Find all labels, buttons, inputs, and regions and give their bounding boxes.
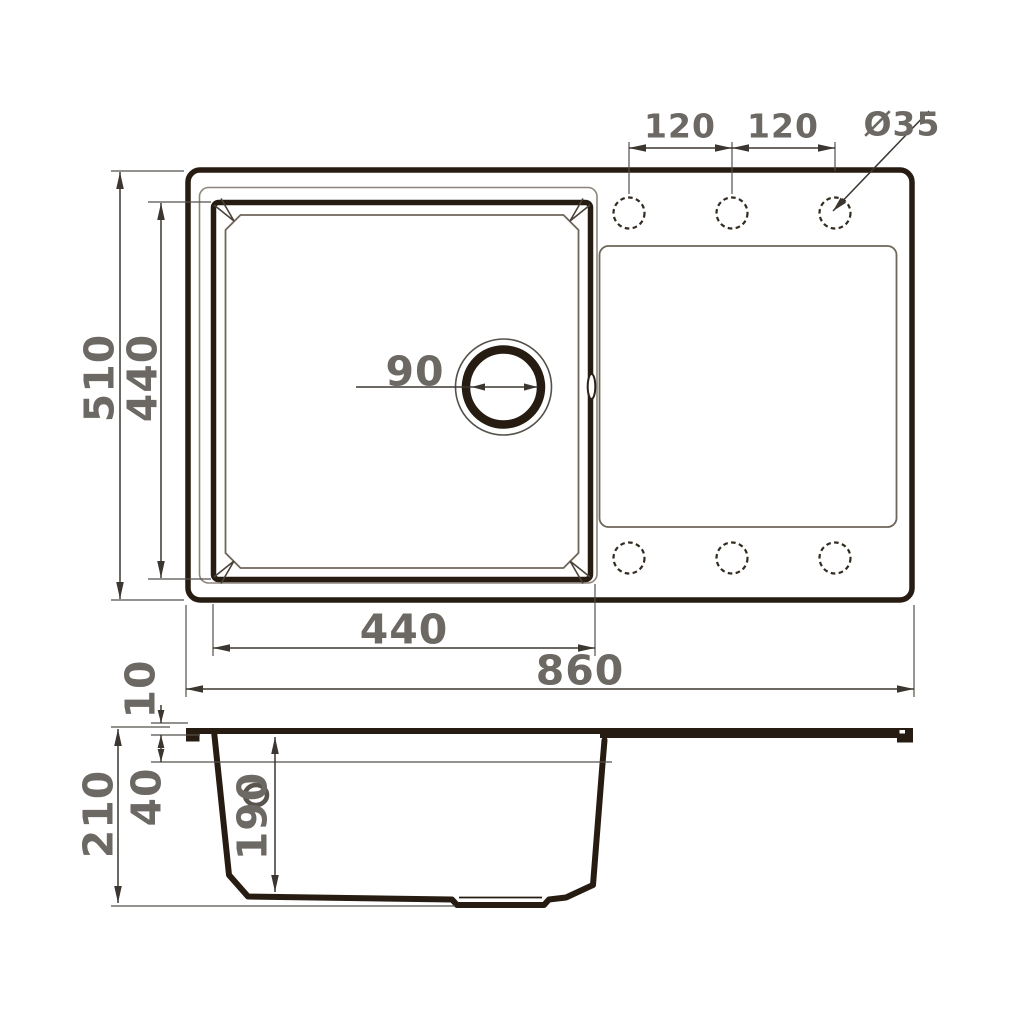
sink-technical-drawing: 120 120 Ø35 90 510 440 440 860 10 40 210… bbox=[0, 0, 1024, 1024]
dim-label-bowl-depth: 440 bbox=[118, 334, 166, 423]
dim-label-hole-diameter: Ø35 bbox=[864, 105, 941, 144]
drainboard-slab bbox=[600, 728, 913, 738]
sink-outline-top-view bbox=[188, 170, 912, 600]
dim-label-overall-width: 860 bbox=[536, 646, 625, 694]
dim-label-hole-spacing-left: 120 bbox=[644, 107, 716, 146]
top-view bbox=[188, 170, 912, 600]
dim-label-bowl-width: 440 bbox=[360, 605, 449, 653]
dim-label-total-height: 210 bbox=[74, 770, 122, 859]
faucet-hole-top-3 bbox=[820, 198, 851, 229]
faucet-holes bbox=[614, 198, 851, 574]
faucet-hole-bottom-1 bbox=[614, 543, 645, 574]
dim-label-edge-height: 10 bbox=[116, 659, 164, 718]
side-view bbox=[186, 728, 913, 905]
dim-label-bowl-inner-depth: 190 bbox=[228, 772, 276, 861]
dim-label-drain-diameter: 90 bbox=[385, 347, 444, 395]
overflow-slot-top-view bbox=[588, 374, 596, 399]
dimensions: 120 120 Ø35 90 510 440 440 860 10 40 210… bbox=[74, 105, 940, 906]
faucet-hole-top-1 bbox=[614, 198, 645, 229]
dim-label-hole-spacing-right: 120 bbox=[747, 107, 819, 146]
dim-label-overall-depth: 510 bbox=[75, 334, 123, 423]
dim-label-apron-height: 40 bbox=[122, 767, 170, 826]
faucet-hole-bottom-2 bbox=[717, 543, 748, 574]
faucet-hole-bottom-3 bbox=[820, 543, 851, 574]
sink-technical-drawing-page: 120 120 Ø35 90 510 440 440 860 10 40 210… bbox=[0, 0, 1024, 1024]
faucet-hole-top-2 bbox=[717, 198, 748, 229]
dimension-labels: 120 120 Ø35 90 510 440 440 860 10 40 210… bbox=[74, 105, 940, 861]
drainboard-outline bbox=[600, 246, 897, 527]
right-lip-notch bbox=[900, 730, 906, 734]
